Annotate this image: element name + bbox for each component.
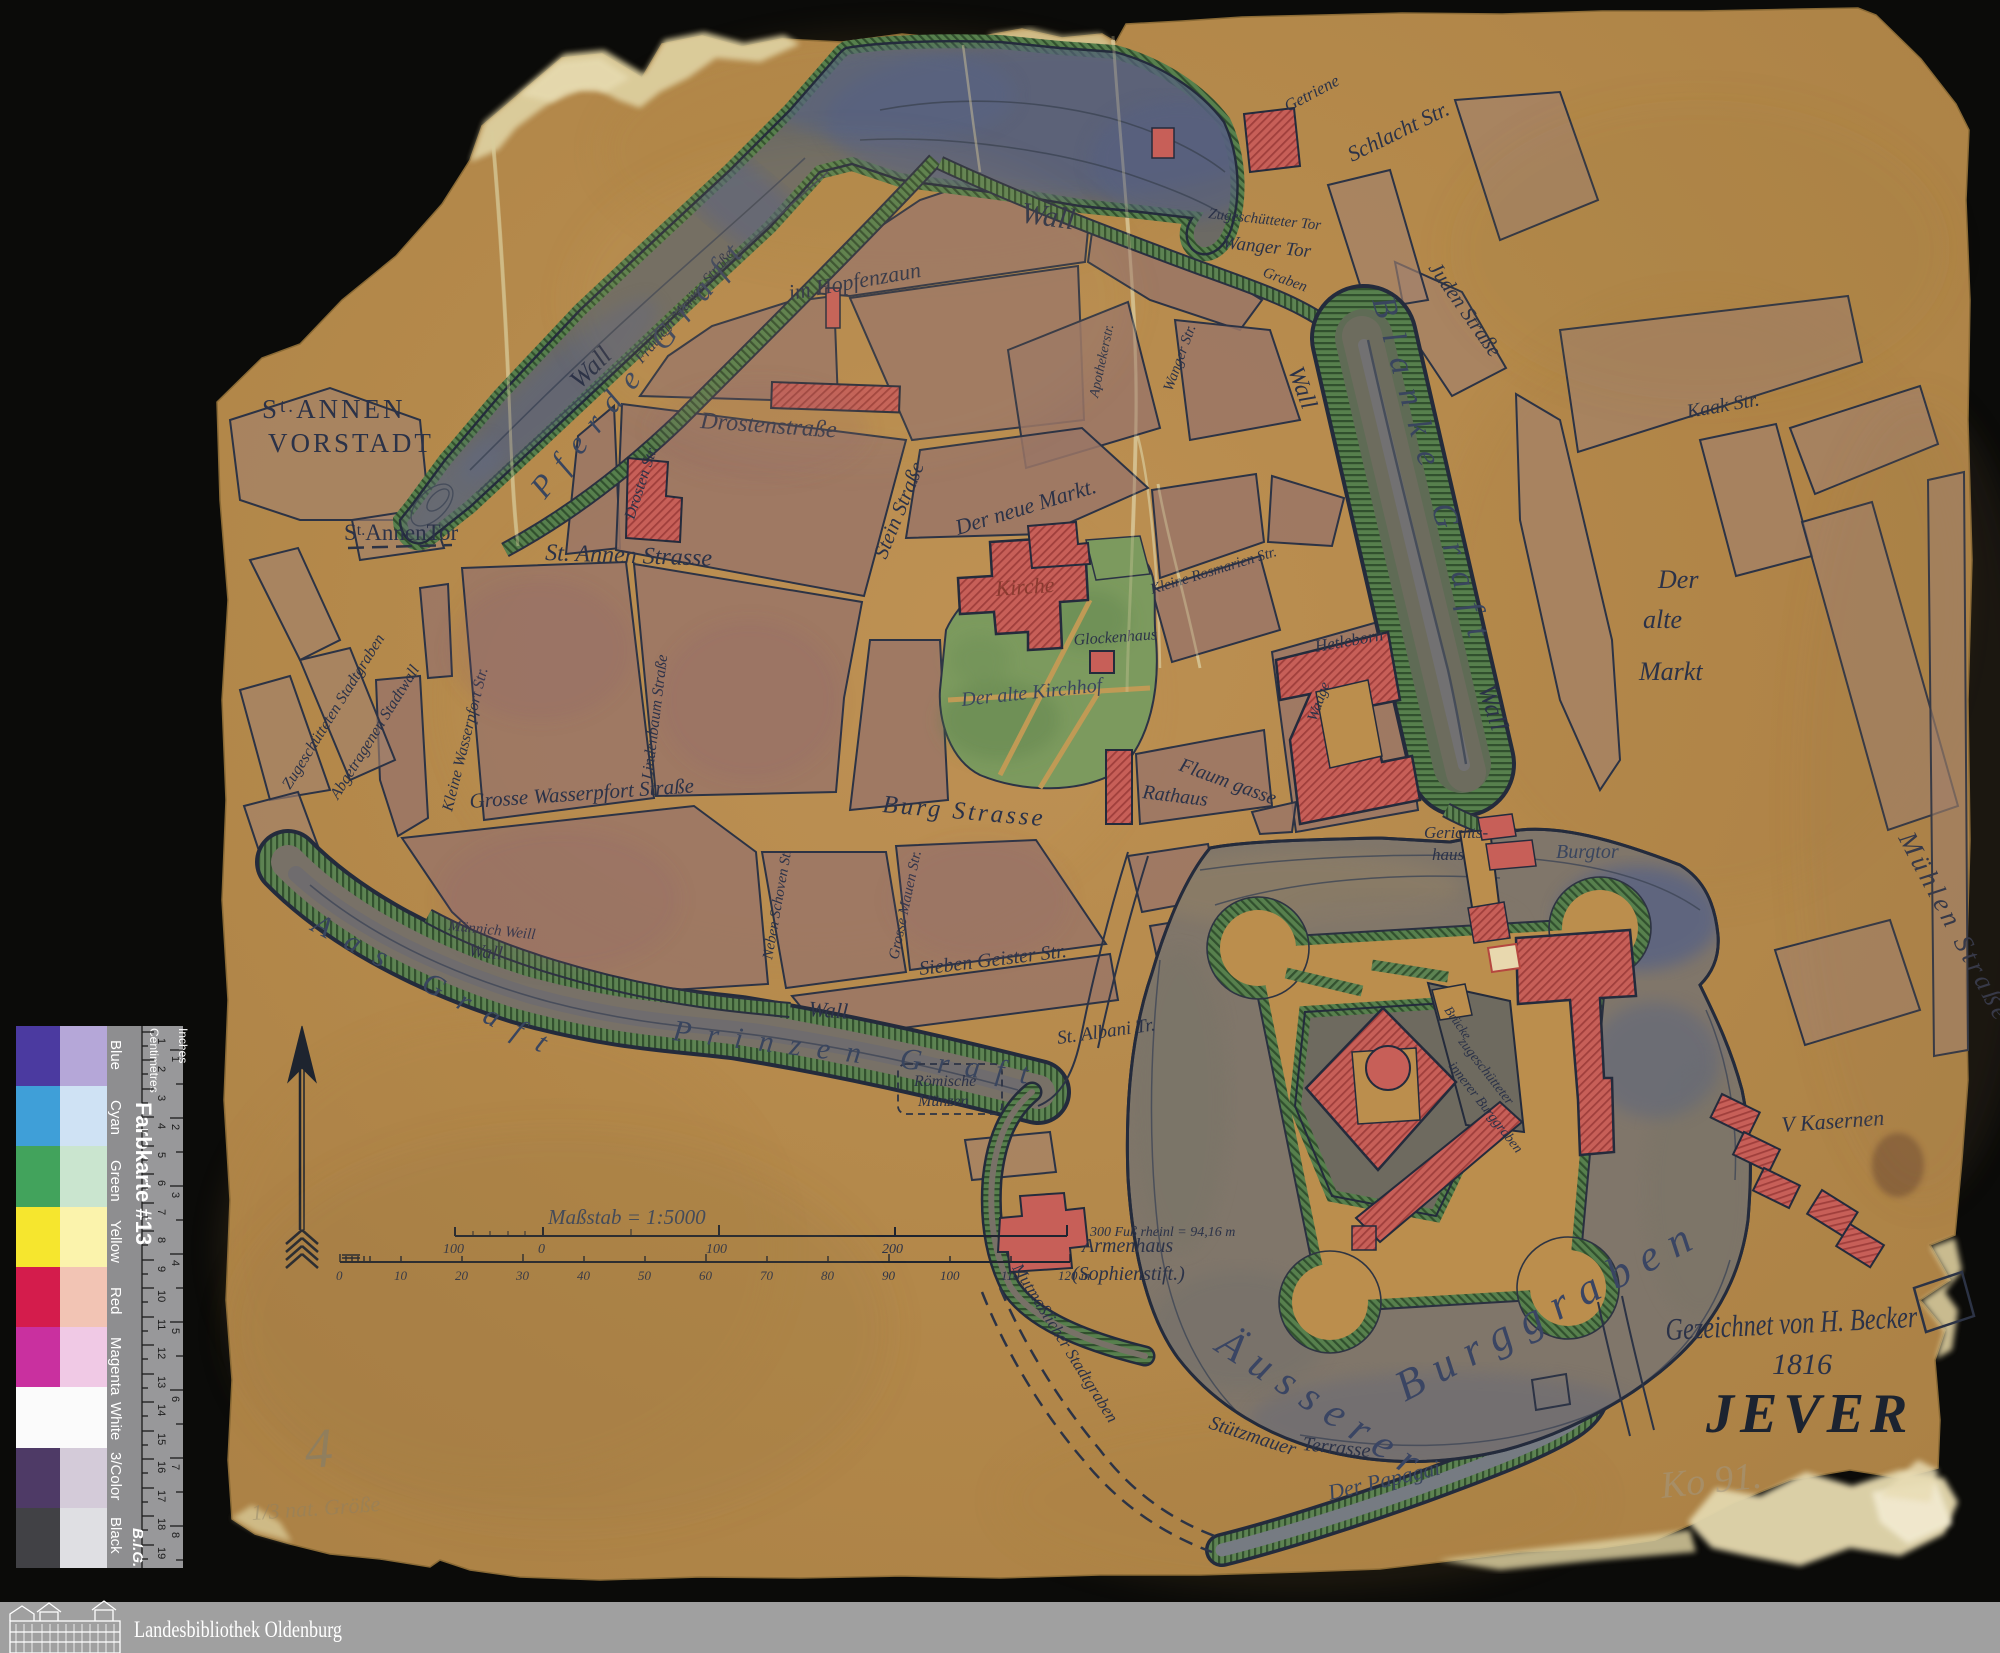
- svg-text:Wall: Wall: [808, 996, 849, 1024]
- svg-text:8: 8: [169, 1532, 181, 1538]
- svg-text:alte: alte: [1643, 605, 1682, 634]
- svg-text:19: 19: [155, 1547, 167, 1559]
- svg-text:Black: Black: [107, 1517, 124, 1554]
- svg-text:Green: Green: [107, 1160, 124, 1202]
- svg-text:VORSTADT: VORSTADT: [268, 428, 434, 458]
- svg-text:Yellow: Yellow: [107, 1220, 124, 1263]
- svg-text:100: 100: [940, 1268, 960, 1283]
- svg-text:4: 4: [169, 1260, 181, 1266]
- svg-text:Kirche: Kirche: [994, 572, 1056, 601]
- svg-text:16: 16: [155, 1461, 167, 1473]
- svg-text:6: 6: [169, 1396, 181, 1402]
- svg-text:1816: 1816: [1772, 1348, 1832, 1381]
- svg-text:5: 5: [169, 1328, 181, 1334]
- svg-text:Red: Red: [107, 1287, 124, 1315]
- svg-text:White: White: [107, 1402, 124, 1440]
- svg-text:90: 90: [882, 1268, 896, 1283]
- svg-text:Der: Der: [1657, 565, 1699, 594]
- svg-text:13: 13: [155, 1376, 167, 1388]
- svg-text:haus: haus: [1432, 845, 1465, 864]
- svg-text:10: 10: [155, 1290, 167, 1302]
- svg-text:JEVER: JEVER: [1705, 1383, 1913, 1445]
- svg-text:Münzen: Münzen: [917, 1093, 969, 1110]
- svg-text:Landesbibliothek Oldenburg: Landesbibliothek Oldenburg: [134, 1617, 342, 1642]
- svg-text:Cyan: Cyan: [107, 1100, 124, 1135]
- svg-text:3: 3: [155, 1095, 167, 1101]
- svg-text:14: 14: [155, 1404, 167, 1416]
- svg-text:300 Fuß rheinl = 94,16 m: 300 Fuß rheinl = 94,16 m: [1089, 1225, 1235, 1240]
- svg-text:120 m: 120 m: [1058, 1268, 1090, 1283]
- svg-text:6: 6: [155, 1180, 167, 1186]
- svg-text:3: 3: [169, 1192, 181, 1198]
- svg-text:Burgtor: Burgtor: [1556, 841, 1619, 863]
- svg-text:1: 1: [155, 1038, 167, 1044]
- svg-text:15: 15: [155, 1433, 167, 1445]
- svg-text:200: 200: [882, 1242, 903, 1257]
- svg-text:9: 9: [155, 1266, 167, 1272]
- svg-text:11: 11: [155, 1319, 167, 1330]
- svg-text:18: 18: [155, 1518, 167, 1530]
- svg-text:Markt: Markt: [1638, 657, 1703, 686]
- svg-text:7: 7: [155, 1209, 167, 1215]
- svg-text:Blue: Blue: [107, 1040, 124, 1070]
- svg-text:2: 2: [155, 1066, 167, 1072]
- svg-text:Römische: Römische: [913, 1073, 976, 1090]
- svg-text:7: 7: [169, 1464, 181, 1470]
- svg-text:17: 17: [155, 1490, 167, 1502]
- svg-text:2: 2: [169, 1124, 181, 1130]
- svg-text:110: 110: [1001, 1268, 1020, 1283]
- svg-text:5: 5: [155, 1152, 167, 1158]
- svg-text:4: 4: [155, 1123, 167, 1129]
- svg-text:Magenta: Magenta: [107, 1337, 124, 1396]
- svg-text:12: 12: [155, 1347, 167, 1359]
- svg-text:8: 8: [155, 1237, 167, 1243]
- svg-text:3/Color: 3/Color: [107, 1452, 124, 1500]
- svg-text:Gerichts-: Gerichts-: [1424, 823, 1489, 842]
- svg-text:B.I.G.: B.I.G.: [129, 1528, 146, 1567]
- svg-text:1: 1: [169, 1056, 181, 1062]
